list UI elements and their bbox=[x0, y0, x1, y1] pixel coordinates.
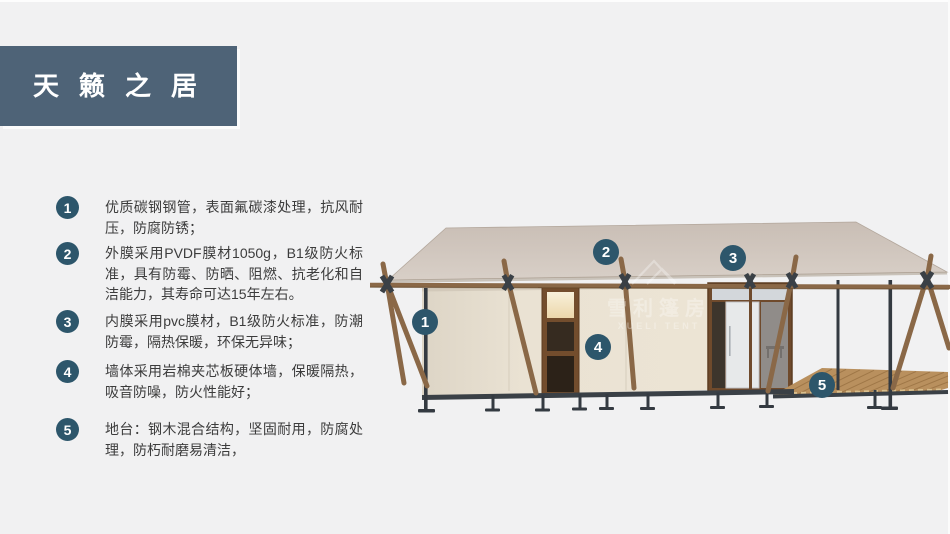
watermark-text-cn: 雪利篷房 bbox=[607, 296, 711, 320]
feature-number-badge-1: 1 bbox=[56, 196, 79, 219]
page-title: 天籁之居 bbox=[0, 46, 237, 126]
deck-platform bbox=[773, 368, 948, 397]
callout-badge-2: 2 bbox=[593, 239, 619, 265]
callout-badge-4: 4 bbox=[585, 334, 611, 360]
feature-number-badge-4: 4 bbox=[56, 360, 79, 383]
callout-badge-5: 5 bbox=[809, 372, 835, 398]
top-edge-divider bbox=[0, 0, 950, 2]
feature-number-badge-2: 2 bbox=[56, 242, 79, 265]
feature-text-3: 内膜采用pvc膜材，B1级防火标准，防潮防霉，隔热保暖，环保无异味； bbox=[105, 311, 363, 352]
callout-badge-1: 1 bbox=[412, 309, 438, 335]
feature-item-4: 4 墙体采用岩棉夹芯板硬体墙，保暖隔热，吸音防噪，防火性能好； bbox=[56, 360, 363, 402]
tent-door bbox=[538, 285, 584, 396]
feature-number-badge-3: 3 bbox=[56, 310, 79, 333]
feature-item-1: 1 优质碳钢钢管，表面氟碳漆处理，抗风耐压，防腐防锈； bbox=[56, 196, 363, 238]
feature-text-4: 墙体采用岩棉夹芯板硬体墙，保暖隔热，吸音防噪，防火性能好； bbox=[105, 361, 363, 402]
slide: 天籁之居 1 优质碳钢钢管，表面氟碳漆处理，抗风耐压，防腐防锈； 2 外膜采用P… bbox=[0, 0, 950, 534]
callout-badge-3: 3 bbox=[720, 245, 746, 271]
feature-text-2: 外膜采用PVDF膜材1050g，B1级防火标准，具有防霉、防晒、阻燃、抗老化和自… bbox=[105, 243, 363, 305]
feature-text-5: 地台：钢木混合结构，坚固耐用，防腐处理，防朽耐磨易清洁， bbox=[105, 419, 363, 460]
tent-illustration: 雪利篷房 XUELI TENT bbox=[370, 198, 950, 434]
feature-item-2: 2 外膜采用PVDF膜材1050g，B1级防火标准，具有防霉、防晒、阻燃、抗老化… bbox=[56, 242, 363, 305]
feature-text-1: 优质碳钢钢管，表面氟碳漆处理，抗风耐压，防腐防锈； bbox=[105, 197, 363, 238]
feature-item-5: 5 地台：钢木混合结构，坚固耐用，防腐处理，防朽耐磨易清洁， bbox=[56, 418, 363, 460]
feature-item-3: 3 内膜采用pvc膜材，B1级防火标准，防潮防霉，隔热保暖，环保无异味； bbox=[56, 310, 363, 352]
watermark-text-en: XUELI TENT bbox=[618, 321, 701, 331]
feature-number-badge-5: 5 bbox=[56, 418, 79, 441]
